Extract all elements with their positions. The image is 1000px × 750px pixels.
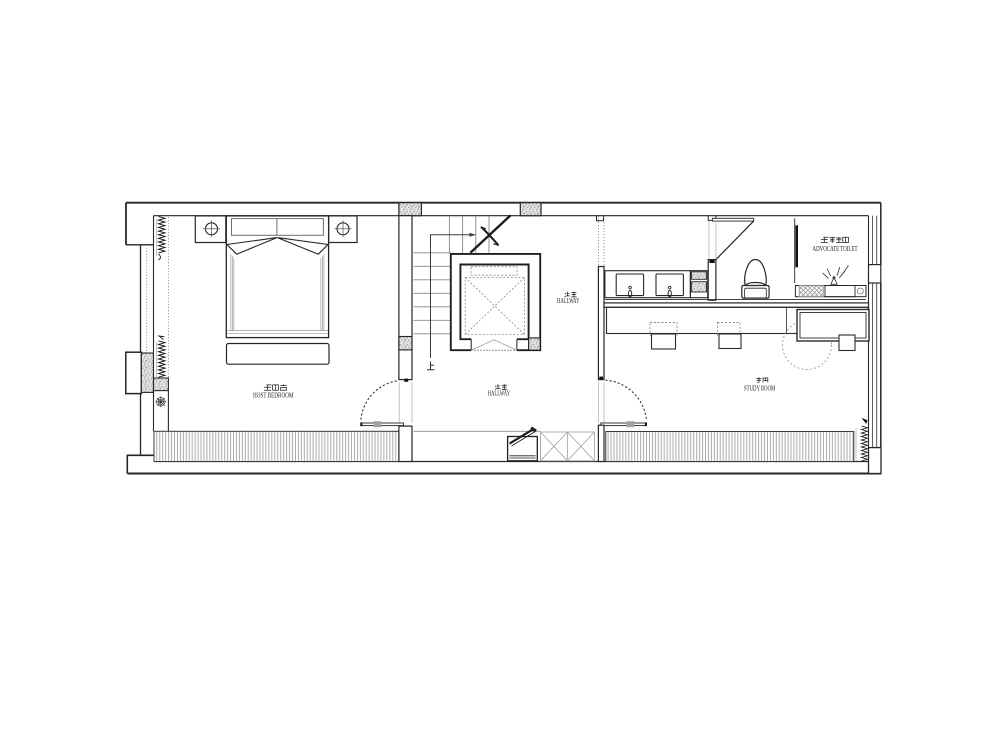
svg-text:STUDY ROOM: STUDY ROOM <box>744 384 776 392</box>
svg-text:ADVOCATE TOILET: ADVOCATE TOILET <box>813 245 859 253</box>
svg-text:HALLWAY: HALLWAY <box>557 297 580 305</box>
svg-text:HALLWAY: HALLWAY <box>488 390 511 398</box>
svg-text:HOST BEDROOM: HOST BEDROOM <box>253 391 294 399</box>
